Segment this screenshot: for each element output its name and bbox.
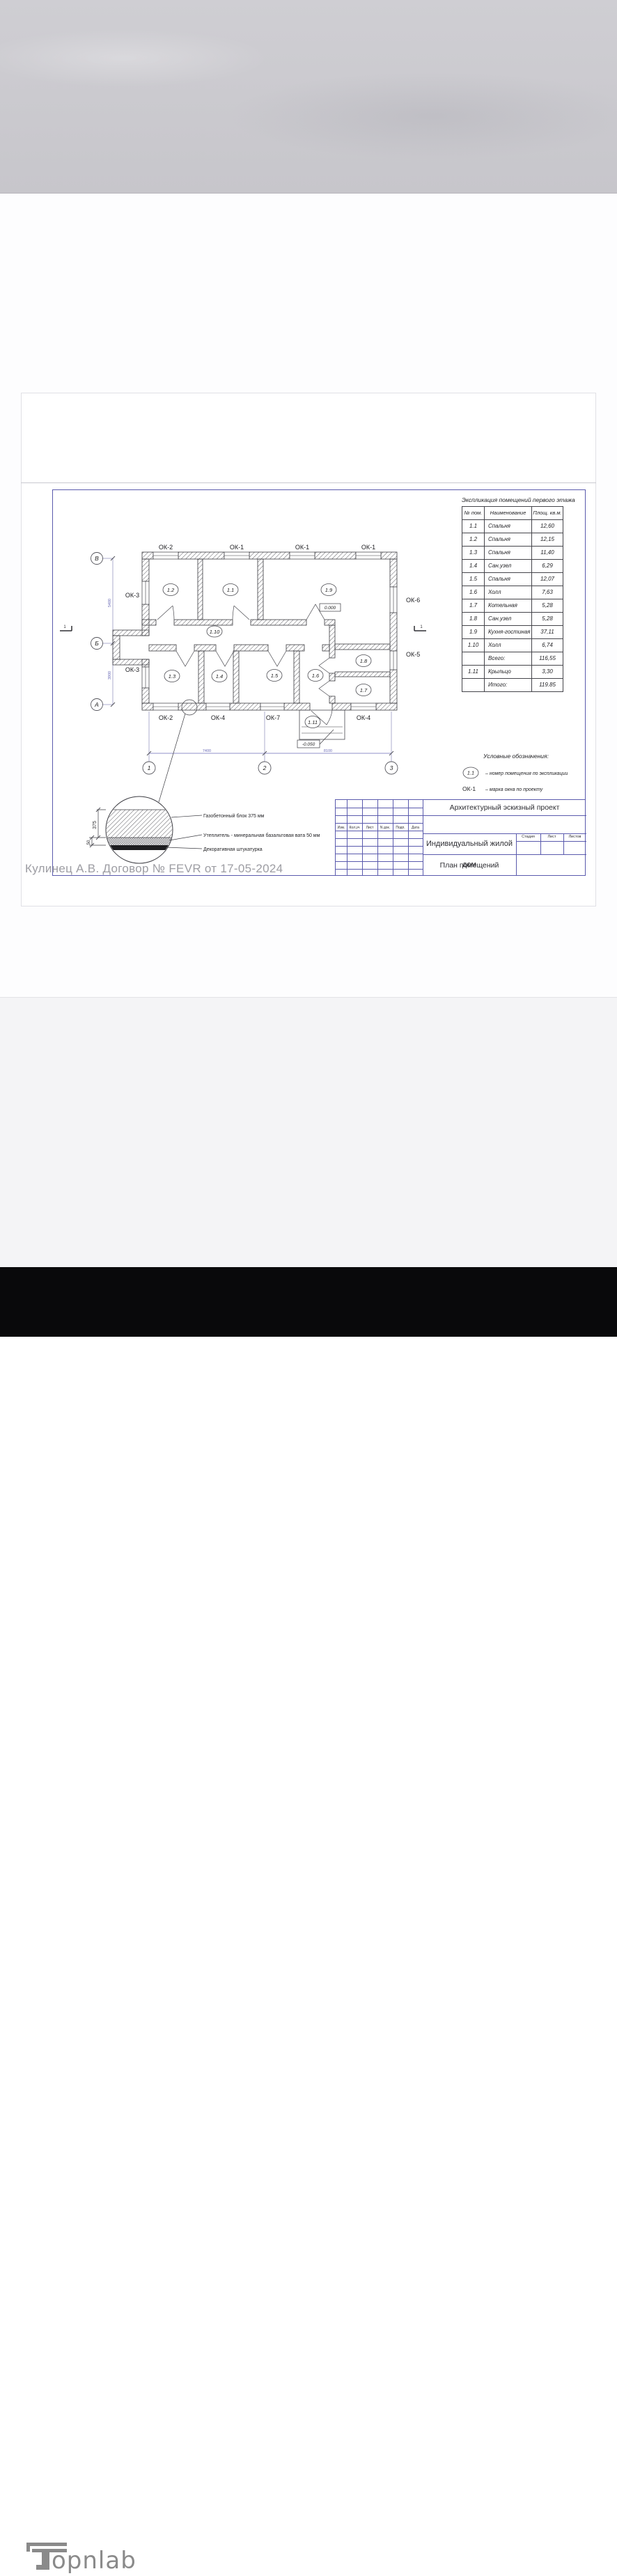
window-label: ОК-1 xyxy=(230,544,244,551)
axis-number: 1 xyxy=(148,764,151,771)
stage-header: Стадия xyxy=(516,833,540,841)
axis-letter: В xyxy=(95,555,99,562)
col-header: Площ. кв.м. xyxy=(532,507,563,520)
room-tag: 1.6 xyxy=(308,670,323,682)
wall-segment xyxy=(149,645,176,651)
drawing-name: План помещений xyxy=(423,854,516,877)
tb-col-header: Лист xyxy=(362,824,377,831)
section-number: 1 xyxy=(420,625,423,629)
window-label: ОК-5 xyxy=(406,651,420,658)
window xyxy=(206,703,230,710)
wall-segment xyxy=(315,552,356,559)
svg-text:1.7: 1.7 xyxy=(360,687,368,693)
legend-room-text: – номер помещения по экспликации xyxy=(485,771,568,776)
legend: Условные обозначения: 1.1 – номер помеще… xyxy=(462,753,568,792)
window xyxy=(390,651,397,670)
elevation-value: -0.050 xyxy=(302,742,315,747)
table-row: 1.9Кухня-гостиная37,11 xyxy=(462,626,563,639)
footer-bar: opnlab xyxy=(0,1267,617,1337)
table-row: 1.8Сан.узел5,28 xyxy=(462,613,563,626)
wall-segment xyxy=(198,651,204,703)
room-tag: 1.9 xyxy=(321,584,336,596)
layer-gas-concrete xyxy=(106,810,173,838)
col-header: Наименование xyxy=(485,507,532,520)
explication-table: Экспликация помещений первого этажа № по… xyxy=(462,496,563,692)
window-label: ОК-4 xyxy=(357,714,370,721)
table-row: 1.6Холл7,63 xyxy=(462,586,563,599)
legend-title: Условные обозначения: xyxy=(483,753,549,760)
room-tag: 1.5 xyxy=(267,670,282,682)
table-row: 1.4Сан.узел6,29 xyxy=(462,560,563,573)
table-row: 1.1Спальня12,60 xyxy=(462,520,563,533)
wall-segment xyxy=(251,620,306,625)
detail-dim: 375 xyxy=(93,821,97,829)
wall-segment xyxy=(335,672,390,677)
wall-segment xyxy=(329,673,335,681)
room-tag: 1.7 xyxy=(356,684,371,696)
door-swing xyxy=(216,651,234,666)
wall-segment xyxy=(325,620,335,625)
window xyxy=(390,587,397,613)
axis-number: 3 xyxy=(390,764,393,771)
window-label: ОК-2 xyxy=(159,544,173,551)
svg-text:1.5: 1.5 xyxy=(271,673,279,679)
window xyxy=(153,703,178,710)
svg-text:1.10: 1.10 xyxy=(210,629,220,635)
room-tag: 1.1 xyxy=(223,584,238,596)
wall-segment xyxy=(233,651,239,703)
detail-dim: 50 xyxy=(87,840,91,845)
interior-walls xyxy=(142,559,390,703)
zero-elevation: 0.000 xyxy=(320,604,341,611)
room-tag: 1.10 xyxy=(207,626,222,637)
window xyxy=(356,552,381,559)
table-row: Итого:119.85 xyxy=(462,679,563,692)
window-label: ОК-7 xyxy=(266,714,280,721)
wall-segment xyxy=(142,688,149,703)
title-block: Изм. Кол.уч Лист N док. Подп. Дата Архит… xyxy=(335,799,586,876)
tb-col-header: Дата xyxy=(408,824,423,831)
tb-col-header: Подп. xyxy=(393,824,408,831)
wall-segment xyxy=(284,703,310,710)
window xyxy=(153,552,178,559)
room-tag: 1.11 xyxy=(305,716,320,728)
room-tag: 1.2 xyxy=(163,584,178,596)
wall-segment xyxy=(142,552,153,559)
wall-segment xyxy=(390,559,397,587)
dimension-value: 3900 xyxy=(108,671,112,680)
svg-text:1.11: 1.11 xyxy=(308,719,318,725)
table-row: 1.7Котельная5,28 xyxy=(462,599,563,613)
axis-letter: А xyxy=(94,701,99,708)
topnlab-logo-text: opnlab xyxy=(52,2545,136,2576)
wall-segment xyxy=(234,645,268,651)
contract-note: Кулинец А.В. Договор № FEVR от 17-05-202… xyxy=(25,862,283,876)
legend-window-symbol: ОК-1 xyxy=(462,785,476,792)
svg-text:1.1: 1.1 xyxy=(227,587,234,593)
door-swing xyxy=(319,681,329,696)
door-swing xyxy=(268,651,286,666)
wall-segment xyxy=(335,644,390,650)
dimension-value: 8100 xyxy=(324,749,332,753)
detail-callout: 375 50 Газобетонный блок 375 мм Утеплите… xyxy=(87,700,320,863)
detail-label: Газобетонный блок 375 мм xyxy=(203,813,265,819)
wall-segment xyxy=(174,620,233,625)
layer-insulation xyxy=(106,838,173,845)
window-label: ОК-3 xyxy=(125,592,139,599)
axis-number: 2 xyxy=(263,764,267,771)
table-title: Экспликация помещений первого этажа xyxy=(462,496,563,503)
table-row: 1.3Спальня11,40 xyxy=(462,547,563,560)
wall-segment xyxy=(332,703,351,710)
table-row: 1.10Холл6,74 xyxy=(462,639,563,652)
window xyxy=(351,703,376,710)
tb-col-header: Изм. xyxy=(336,824,347,831)
wall-segment xyxy=(113,636,120,659)
wall-segment xyxy=(113,659,149,665)
axis-letter: Б xyxy=(95,640,99,647)
room-tag: 1.3 xyxy=(164,670,180,682)
wall-segment xyxy=(142,620,156,625)
sheet-header: Лист xyxy=(540,833,563,841)
col-header: № пом. xyxy=(462,507,485,520)
dimension-value: 7400 xyxy=(203,749,211,753)
table-row: 1.5Спальня12,07 xyxy=(462,573,563,586)
wall-segment xyxy=(194,645,216,651)
svg-text:1.9: 1.9 xyxy=(325,587,333,593)
window-label: ОК-2 xyxy=(159,714,173,721)
wall-segment xyxy=(113,630,149,636)
room-tag: 1.8 xyxy=(356,655,371,667)
wall-segment xyxy=(198,559,203,620)
window-label: ОК-6 xyxy=(406,597,420,604)
tb-col-header: N док. xyxy=(377,824,393,831)
table-header-row: № пом. Наименование Площ. кв.м. xyxy=(462,507,563,520)
wall-segment xyxy=(142,703,153,710)
screenshot-root: В Б А 5400 3900 7400 8100 1 2 3 1 1 xyxy=(0,0,617,1337)
window xyxy=(290,552,315,559)
window xyxy=(142,667,149,688)
svg-text:1.6: 1.6 xyxy=(312,673,320,679)
project-name: Архитектурный эскизный проект xyxy=(423,800,586,815)
window xyxy=(260,703,284,710)
table-row: 1.11Крыльцо3,30 xyxy=(462,666,563,679)
wall-segment xyxy=(381,552,397,559)
wall-segment xyxy=(230,703,260,710)
svg-text:1.8: 1.8 xyxy=(360,658,368,664)
porch: -0.050 xyxy=(297,710,345,748)
window-label: ОК-4 xyxy=(211,714,225,721)
wall-segment xyxy=(376,703,397,710)
top-blurred-band xyxy=(0,0,617,194)
wall-segment xyxy=(258,559,263,620)
svg-text:1.4: 1.4 xyxy=(216,673,223,680)
wall-segment xyxy=(390,670,397,703)
bottom-band xyxy=(0,997,617,1268)
room-tag: 1.4 xyxy=(212,670,227,682)
door-swing xyxy=(176,651,194,666)
table-row: 1.2Спальня12,15 xyxy=(462,533,563,547)
svg-text:1.3: 1.3 xyxy=(169,673,176,680)
window-labels: ОК-2 ОК-1 ОК-1 ОК-1 ОК-2 ОК-4 ОК-7 ОК-4 … xyxy=(125,544,420,721)
outer-walls xyxy=(113,552,397,710)
wall-segment xyxy=(322,645,329,651)
door-swing xyxy=(233,606,249,620)
wall-segment xyxy=(142,559,149,581)
tb-col-header: Кол.уч xyxy=(347,824,362,831)
wall-segment xyxy=(329,625,335,658)
sheets-header: Листов xyxy=(563,833,586,841)
door-swing xyxy=(157,606,174,620)
svg-text:1.2: 1.2 xyxy=(167,587,175,593)
detail-label: Декоративная штукатурка xyxy=(203,847,263,852)
window-label: ОК-1 xyxy=(361,544,375,551)
detail-label: Утеплитель - минеральная базальтовая ват… xyxy=(203,833,320,838)
elevation-value: 0.000 xyxy=(325,606,336,611)
wall-segment xyxy=(329,696,335,703)
wall-segment xyxy=(249,552,290,559)
legend-window-text: – марка окна по проекту xyxy=(485,787,543,792)
table-row: Всего:116,55 xyxy=(462,652,563,666)
section-number: 1 xyxy=(63,625,66,629)
wall-segment xyxy=(390,613,397,651)
wall-segment xyxy=(294,651,299,703)
window xyxy=(224,552,249,559)
wall-segment xyxy=(286,645,304,651)
legend-room-symbol-text: 1.1 xyxy=(467,770,474,776)
dimension-value: 5400 xyxy=(108,599,112,607)
window-label: ОК-1 xyxy=(295,544,309,551)
window-label: ОК-3 xyxy=(125,666,139,673)
wall-segment xyxy=(178,552,224,559)
layer-plaster xyxy=(106,845,173,850)
window xyxy=(142,581,149,604)
